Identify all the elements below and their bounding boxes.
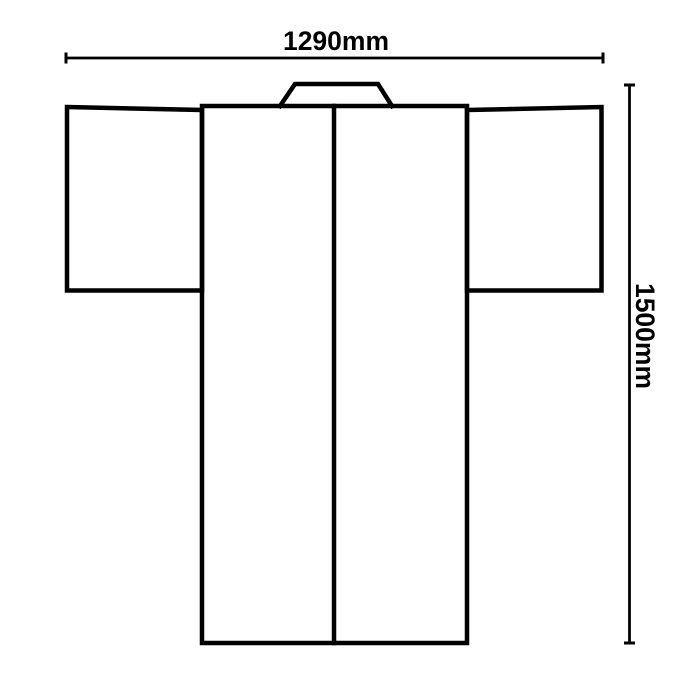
height-dimension: 1500mm: [624, 85, 660, 643]
left-sleeve-outline: [67, 107, 202, 291]
collar-outline: [280, 84, 392, 106]
diagram-canvas: 1290mm 1500mm: [0, 0, 700, 700]
height-dimension-label: 1500mm: [630, 283, 660, 389]
kimono-outline: [67, 84, 602, 643]
width-dimension-label: 1290mm: [283, 26, 389, 56]
right-sleeve-outline: [467, 107, 602, 291]
kimono-dimension-diagram: 1290mm 1500mm: [0, 0, 700, 700]
width-dimension: 1290mm: [66, 26, 603, 64]
